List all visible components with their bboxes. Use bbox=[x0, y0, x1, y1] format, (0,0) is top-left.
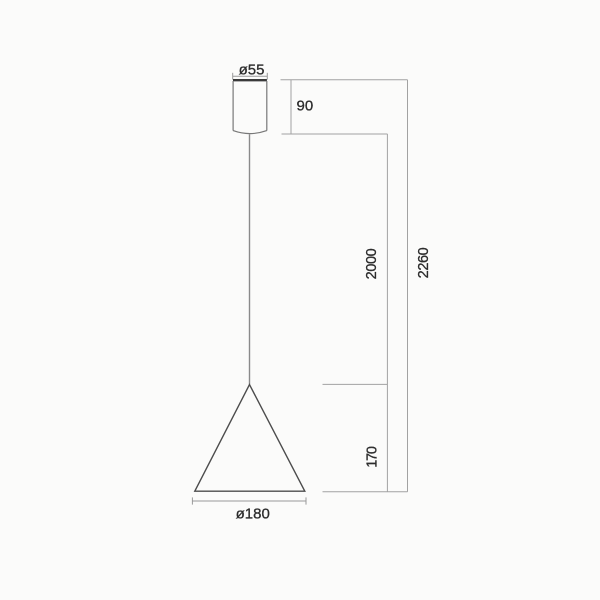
svg-text:2000: 2000 bbox=[364, 248, 380, 279]
svg-text:90: 90 bbox=[297, 97, 314, 114]
svg-text:170: 170 bbox=[365, 446, 381, 468]
svg-text:2260: 2260 bbox=[416, 247, 432, 278]
svg-text:ø180: ø180 bbox=[236, 506, 270, 523]
